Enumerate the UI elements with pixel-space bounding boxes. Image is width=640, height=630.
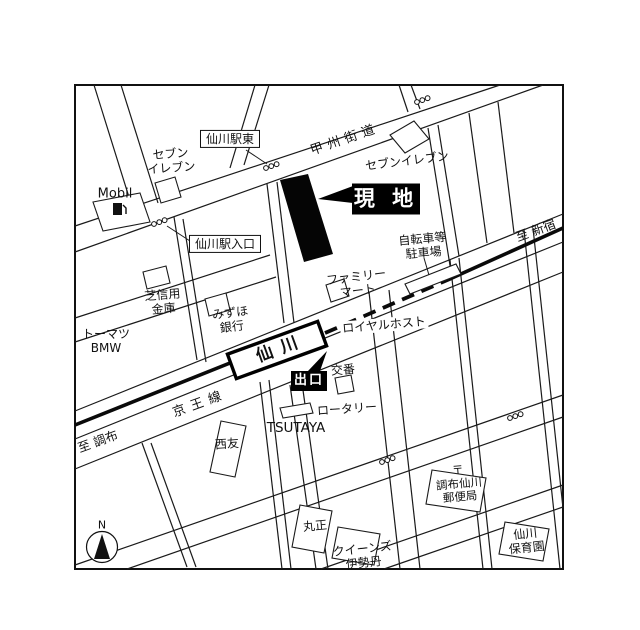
label-tsutaya: TSUTAYA: [267, 421, 326, 437]
label-mizuho-bank: みずほ 銀行: [211, 304, 250, 336]
map-drawing: [0, 0, 640, 630]
exit-callout: 出口: [291, 371, 327, 391]
label-mobil: Mobil: [98, 186, 133, 201]
site-callout: 現 地: [352, 184, 420, 215]
compass-north-label: N: [98, 520, 106, 533]
koban-building: [335, 375, 354, 394]
label-koban: 交番: [331, 362, 356, 378]
label-nursery: 仙川 保育園: [507, 525, 546, 557]
label-tomatsu-bmw: トーマツ BMW: [82, 327, 130, 355]
label-post-office: 〒 調布仙川 郵便局: [434, 462, 483, 507]
label-bicycle-parking: 自転車等 駐車場: [398, 230, 448, 262]
label-station-entrance: 仙川駅入口: [189, 235, 261, 253]
label-seven-eleven-west: セブン イレブン: [146, 145, 196, 177]
label-shiba-shinkin: 芝信用 金庫: [144, 286, 182, 317]
label-marusho: 丸正: [302, 518, 327, 534]
label-seiyu: 西友: [215, 436, 240, 452]
compass: [87, 532, 118, 563]
map-canvas: 仙川駅東 セブン イレブン Mobil 甲州街道 セブンイレブン 現 地 自転車…: [0, 0, 640, 630]
label-station-east: 仙川駅東: [200, 130, 260, 148]
